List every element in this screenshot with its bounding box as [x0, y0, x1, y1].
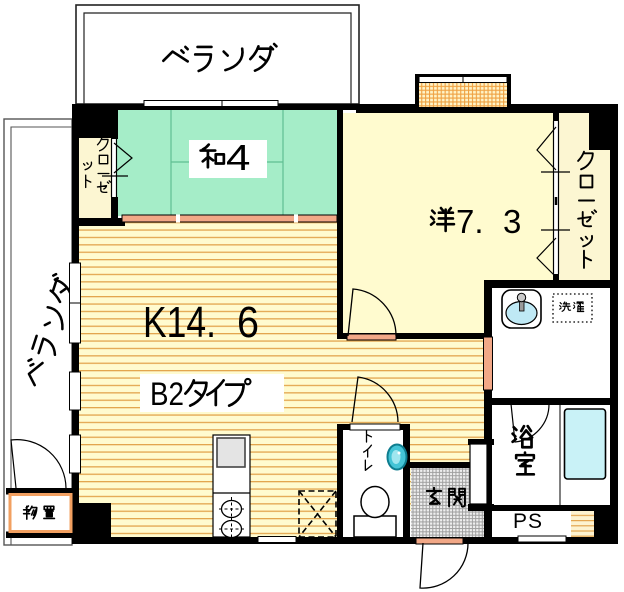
svg-text:6: 6 [237, 298, 259, 347]
svg-text:PS: PS [513, 510, 543, 533]
svg-text:4: 4 [226, 138, 250, 178]
svg-text:K14.: K14. [143, 298, 216, 347]
svg-text:3: 3 [503, 203, 521, 240]
svg-text:B2: B2 [150, 376, 184, 412]
svg-text:7.: 7. [456, 203, 484, 240]
